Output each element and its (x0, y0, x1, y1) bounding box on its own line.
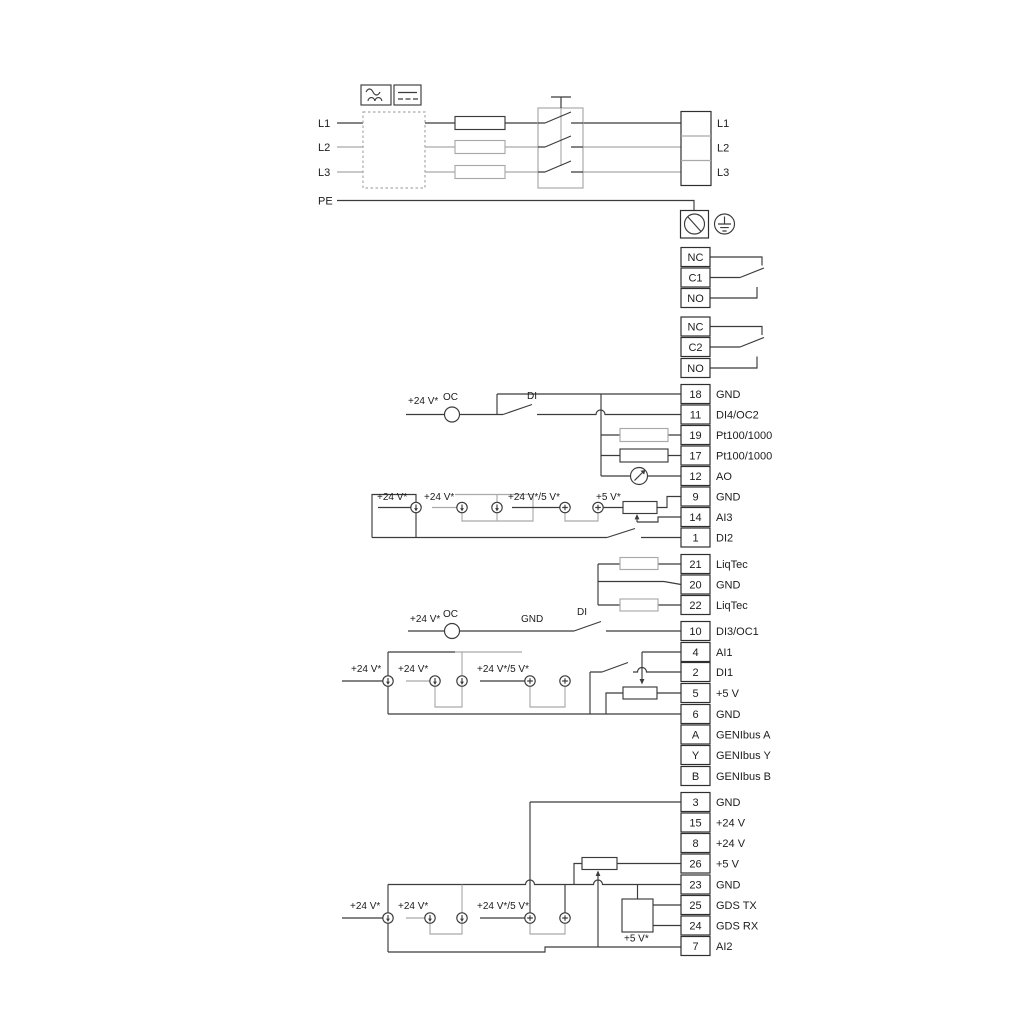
terminal-number: 3 (692, 797, 698, 809)
di-label: DI (577, 607, 587, 618)
terminal-label: +5 V (716, 859, 740, 871)
terminal-number: A (692, 730, 700, 742)
terminal-label: Pt100/1000 (716, 430, 772, 442)
pt100-resistor-icon (620, 429, 668, 442)
voltage-source-icon (560, 502, 570, 512)
current-source-icon (411, 502, 421, 512)
terminal-number: 20 (689, 580, 701, 592)
terminal-number: C1 (688, 273, 702, 285)
oc-label: OC (443, 609, 458, 620)
dc-symbol-icon (394, 85, 421, 105)
current-source-icon (457, 502, 467, 512)
voltage-label: +24 V*/5 V* (477, 664, 529, 675)
terminal-label: AI3 (716, 512, 733, 524)
screw-terminal-icon (681, 211, 709, 239)
terminal-label: GND (716, 880, 741, 892)
label-l1: L1 (318, 118, 330, 130)
terminal-number: 7 (692, 941, 698, 953)
terminal-number: 17 (689, 451, 701, 463)
fuse-l1 (455, 117, 505, 130)
voltage-source-icon (593, 502, 603, 512)
terminal-label: DI4/OC2 (716, 410, 759, 422)
power-input-labels: L1 L2 L3 PE (318, 118, 333, 208)
terminal-number: 5 (692, 688, 698, 700)
ac-symbol-icon (361, 85, 391, 105)
current-source-icon (492, 502, 502, 512)
terminal-label: LiqTec (716, 559, 748, 571)
terminal-number: 23 (689, 880, 701, 892)
terminal-label: GND (716, 580, 741, 592)
voltage-label: +24 V* (398, 901, 428, 912)
mains-terminal-block (681, 112, 711, 186)
terminal-number: 8 (692, 838, 698, 850)
power-section-wiring (337, 85, 735, 238)
terminal-label: AI1 (716, 647, 733, 659)
gds-sensor-icon (622, 885, 681, 933)
terminal-number: 26 (689, 859, 701, 871)
liqtec-sensor-icon (620, 558, 658, 570)
voltage-label: +5 V* (596, 492, 621, 503)
relay2-terminals: NC C2 NO (681, 317, 710, 378)
open-collector-icon (445, 407, 460, 422)
voltage-label: +24 V*/5 V* (508, 492, 560, 503)
terminal-number: 2 (692, 667, 698, 679)
terminal-label: L2 (717, 143, 729, 155)
terminal-label: GENIbus Y (716, 750, 771, 762)
terminal-number: B (692, 771, 699, 783)
gnd-label: GND (521, 614, 543, 625)
voltage-source-icon (525, 913, 535, 923)
relay1-terminals: NC C1 NO (681, 248, 710, 308)
analog-output-meter-icon (631, 468, 648, 485)
potentiometer-icon (623, 497, 681, 523)
terminal-number: NC (688, 322, 704, 334)
terminal-number: 22 (689, 600, 701, 612)
terminal-number: 21 (689, 559, 701, 571)
label-l2: L2 (318, 142, 330, 154)
current-source-icon (425, 913, 435, 923)
pt100-resistor-icon (620, 449, 668, 462)
terminal-number: 24 (689, 921, 701, 933)
terminal-number: NO (687, 293, 704, 305)
io-terminals-group1: 18GND 11DI4/OC2 19Pt100/1000 17Pt100/100… (681, 385, 772, 548)
terminal-number: 19 (689, 430, 701, 442)
voltage-label: +24 V* (424, 492, 454, 503)
terminal-number: 11 (690, 410, 701, 422)
terminal-number: 14 (689, 512, 701, 524)
relay2-contact-icon (710, 327, 764, 369)
potentiometer-icon (606, 687, 681, 714)
terminal-number: 25 (689, 900, 701, 912)
io-terminals-group4: 3GND 15+24 V 8+24 V 26+5 V 23GND 25GDS T… (681, 793, 759, 956)
terminal-label: L1 (717, 118, 729, 130)
fuse-l3 (455, 166, 505, 179)
io-terminals-group2: 21LiqTec 20GND 22LiqTec (681, 555, 748, 615)
voltage-source-icon (560, 913, 570, 923)
terminal-label: GND (716, 797, 741, 809)
earth-ground-icon (715, 214, 735, 234)
current-source-icon (457, 676, 467, 686)
terminal-number: Y (692, 750, 700, 762)
liqtec-sensor-icon (620, 599, 658, 611)
current-source-icon (457, 913, 467, 923)
voltage-source-icon (525, 676, 535, 686)
terminal-number: 15 (689, 818, 701, 830)
group1-wiring (406, 394, 681, 485)
terminal-number: 10 (689, 626, 701, 638)
terminal-number: 18 (689, 389, 701, 401)
terminal-number: 4 (692, 647, 698, 659)
terminal-number: NC (688, 252, 704, 264)
main-switch-icon (538, 97, 583, 188)
relay1-contact-icon (710, 257, 764, 298)
terminal-label: L3 (717, 167, 729, 179)
terminal-label: GENIbus B (716, 771, 771, 783)
voltage-label: +24 V* (377, 492, 407, 503)
terminal-label: +24 V (716, 818, 746, 830)
current-source-icon (383, 913, 393, 923)
label-pe: PE (318, 196, 333, 208)
terminal-label: DI3/OC1 (716, 626, 759, 638)
io-terminals-group3: 10DI3/OC1 4AI1 2DI1 5+5 V 6GND AGENIbus … (681, 622, 771, 786)
terminal-number: 12 (689, 471, 701, 483)
group4-wiring (342, 802, 681, 952)
voltage-label: +24 V* (410, 614, 440, 625)
voltage-source-icon (560, 676, 570, 686)
terminal-label: GND (716, 492, 741, 504)
power-output-labels: L1 L2 L3 (717, 118, 729, 179)
terminal-label: DI1 (716, 667, 733, 679)
open-collector-icon (445, 624, 460, 639)
terminal-label: +5 V (716, 688, 740, 700)
current-source-icon (430, 676, 440, 686)
terminal-label: GENIbus A (716, 730, 771, 742)
voltage-label: +24 V* (398, 664, 428, 675)
terminal-label: GND (716, 709, 741, 721)
current-source-icon (383, 676, 393, 686)
terminal-label: +24 V (716, 838, 746, 850)
voltage-label: +5 V* (624, 934, 649, 945)
di-label: DI (527, 391, 537, 402)
label-l3: L3 (318, 167, 330, 179)
liqtec-wiring (598, 558, 681, 612)
terminal-number: 1 (692, 533, 698, 545)
emc-filter-box (363, 112, 425, 188)
terminal-number: 6 (692, 709, 698, 721)
terminal-label: GND (716, 389, 741, 401)
voltage-label: +24 V* (350, 901, 380, 912)
wiring-diagram-page: L1 L2 L3 PE L1 L2 L3 NC C1 NO NC C2 NO 1… (0, 0, 1024, 1024)
terminal-label: Pt100/1000 (716, 451, 772, 463)
fuse-l2 (455, 141, 505, 154)
voltage-label: +24 V*/5 V* (477, 901, 529, 912)
terminal-number: 9 (692, 492, 698, 504)
wiring-diagram: L1 L2 L3 PE L1 L2 L3 NC C1 NO NC C2 NO 1… (0, 0, 1024, 1024)
terminal-number: NO (687, 363, 704, 375)
terminal-label: GDS TX (716, 900, 757, 912)
terminal-label: GDS RX (716, 921, 759, 933)
terminal-number: C2 (688, 342, 702, 354)
terminal-label: LiqTec (716, 600, 748, 612)
terminal-label: AO (716, 471, 732, 483)
terminal-label: AI2 (716, 941, 733, 953)
voltage-label: +24 V* (408, 396, 438, 407)
voltage-label: +24 V* (351, 664, 381, 675)
terminal-label: DI2 (716, 533, 733, 545)
oc-label: OC (443, 392, 458, 403)
